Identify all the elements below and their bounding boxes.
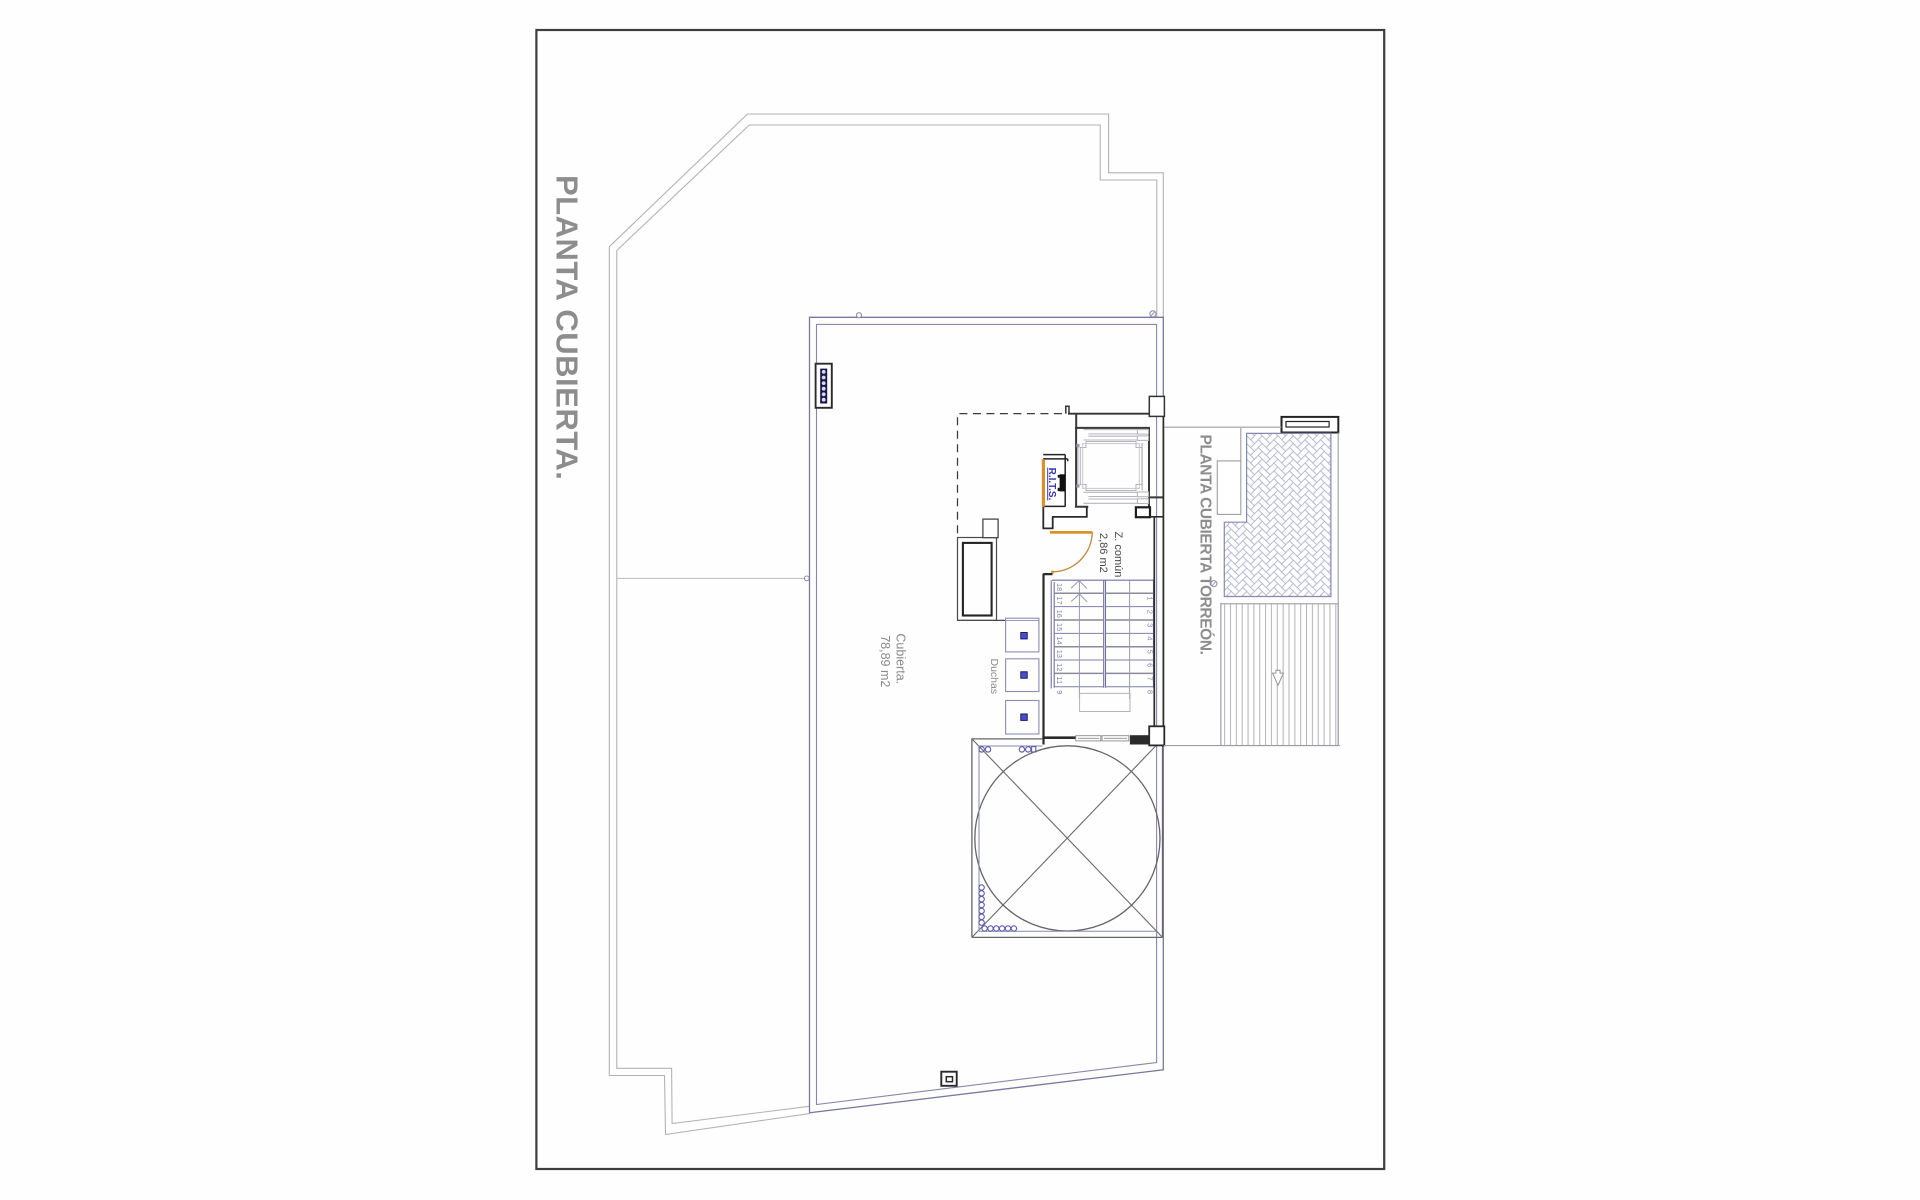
svg-text:16: 16 [1055, 610, 1064, 618]
svg-text:4: 4 [1146, 636, 1155, 640]
svg-text:7: 7 [1146, 677, 1155, 681]
svg-text:3: 3 [1146, 623, 1155, 627]
svg-text:12: 12 [1055, 663, 1064, 671]
svg-text:11: 11 [1055, 677, 1064, 685]
svg-text:18: 18 [1055, 583, 1064, 591]
svg-text:17: 17 [1055, 596, 1064, 604]
svg-text:14: 14 [1055, 636, 1064, 644]
svg-text:R.I.T.S.: R.I.T.S. [1046, 468, 1057, 501]
svg-text:8: 8 [1146, 690, 1155, 694]
svg-text:9: 9 [1055, 690, 1064, 694]
svg-text:Duchas: Duchas [988, 659, 1000, 695]
svg-text:2,86 m2: 2,86 m2 [1097, 533, 1109, 573]
svg-text:2: 2 [1146, 610, 1155, 614]
svg-text:Cubierta.: Cubierta. [894, 633, 908, 684]
svg-text:PLANTA CUBIERTA.: PLANTA CUBIERTA. [550, 175, 585, 480]
svg-text:Z. común: Z. común [1112, 532, 1124, 578]
svg-text:78,89 m2: 78,89 m2 [878, 635, 892, 687]
svg-text:13: 13 [1055, 650, 1064, 658]
svg-text:5: 5 [1146, 650, 1155, 654]
svg-text:1: 1 [1146, 596, 1155, 600]
svg-text:6: 6 [1146, 663, 1155, 667]
svg-text:15: 15 [1055, 623, 1064, 631]
svg-text:PLANTA CUBIERTA TORREÓN.: PLANTA CUBIERTA TORREÓN. [1196, 435, 1214, 655]
